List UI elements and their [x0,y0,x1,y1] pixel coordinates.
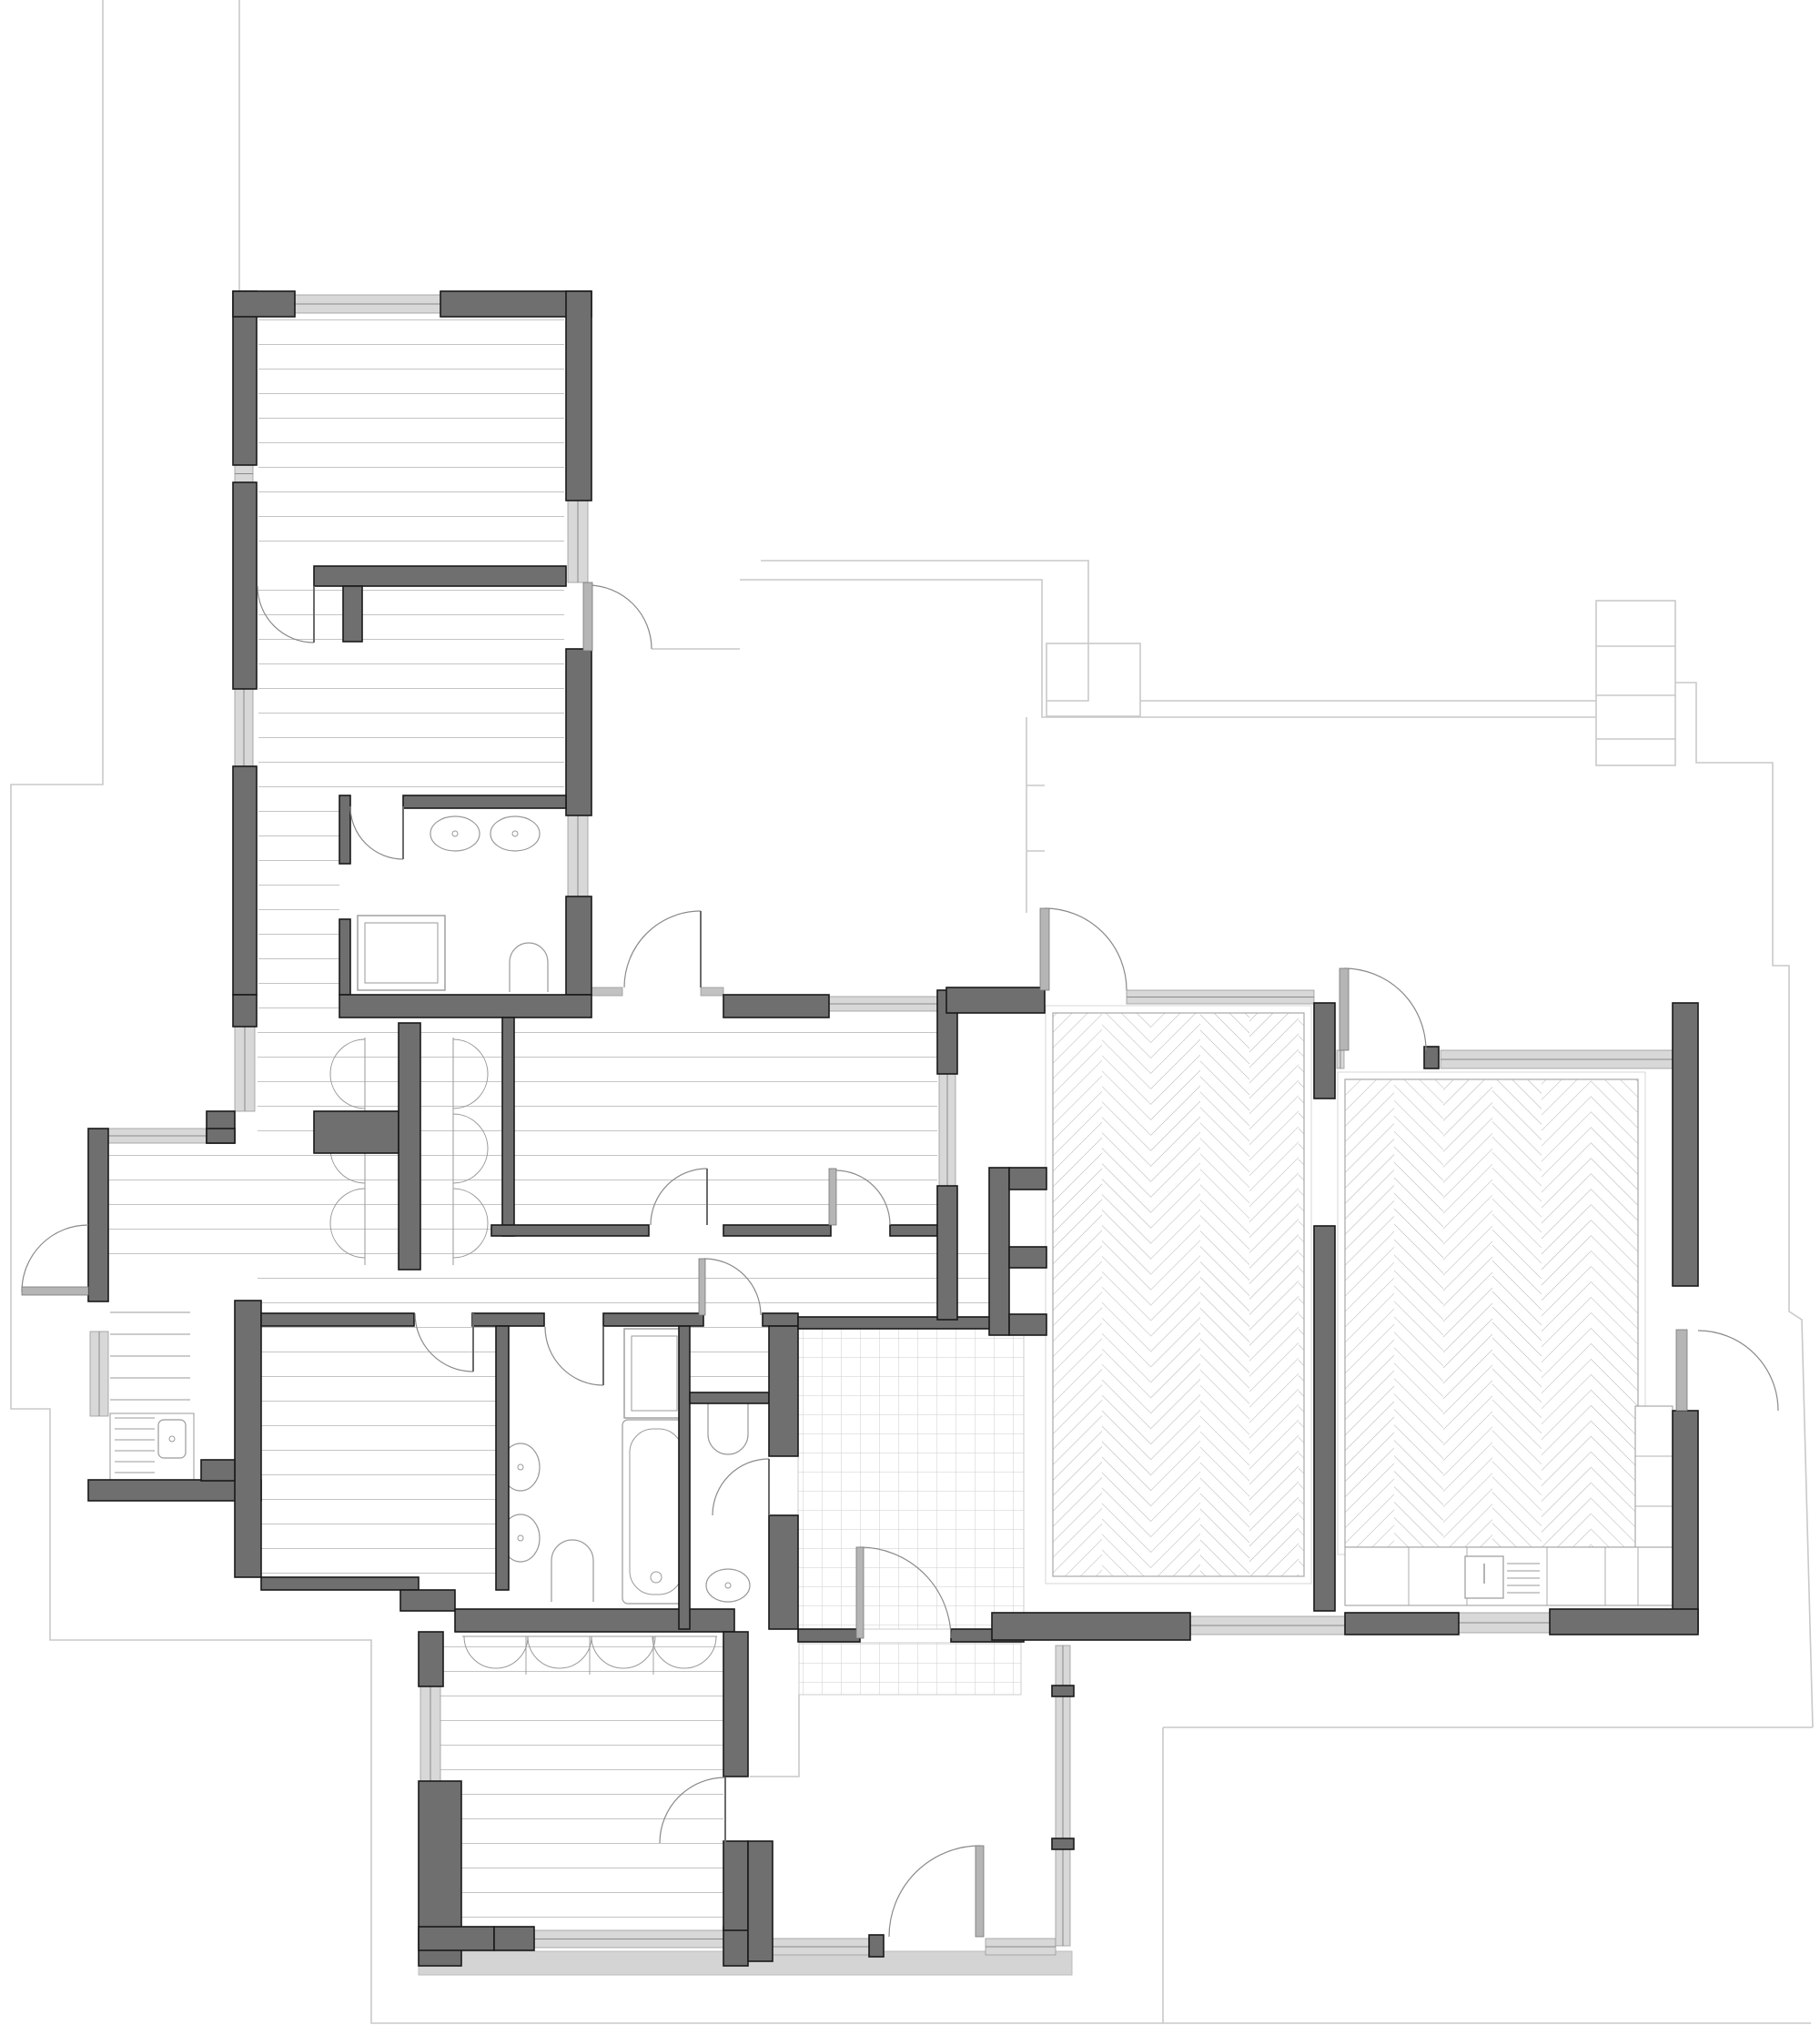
wall-segment [419,1927,494,1950]
wall-segment [566,896,591,995]
site-boundary-line [761,561,1088,701]
wall-segment [314,1111,399,1153]
toilet [510,943,548,992]
door-swing-arc [588,585,652,649]
wall-segment [339,795,350,864]
floor-plan-canvas [0,0,1820,2025]
wall-segment [723,1225,831,1236]
toilet [708,1402,748,1454]
door-leaf [1340,968,1349,1050]
wall-segment [1345,1613,1459,1635]
site-outline-rect [1596,601,1675,765]
door-leaf [1040,908,1049,990]
wall-segment [233,482,257,689]
wall-segment [88,1129,108,1301]
wall-segment [603,1313,703,1326]
sink-basin [706,1569,750,1602]
site-boundary-line [750,1695,799,1777]
herringbone-band [1299,1013,1304,1576]
door-swing-arc [545,1327,603,1385]
wall-segment [1550,1609,1698,1635]
door-swing-arc [350,806,403,859]
herringbone-band [1591,1079,1638,1547]
wall-segment [798,1629,860,1642]
wall-segment [769,1515,798,1629]
door-swing-arc [1344,968,1426,1050]
wall-segment [1314,1226,1335,1611]
door-leaf [856,1547,864,1638]
herringbone-band [1394,1079,1443,1547]
plank-floor [261,1313,496,1577]
wall-segment [566,291,591,501]
wall-segment [314,566,566,586]
wall-segment [343,586,362,642]
herringbone-band [1249,1013,1299,1576]
wall-segment [1052,1686,1074,1696]
sink-basin [490,816,540,851]
counter [1635,1406,1673,1547]
door-swing-arc [713,1459,769,1515]
washing-machine [624,1329,684,1418]
door-swing-arc [1045,908,1127,990]
herringbone-floor [1338,1072,1645,1554]
light-wall-segment [701,987,723,996]
herringbone-band [1200,1013,1249,1576]
site-outline-rect [1046,643,1140,716]
door-leaf [829,1169,836,1225]
kitchenette-sink [158,1420,186,1458]
herringbone-band [1151,1013,1200,1576]
wall-segment [261,1577,419,1590]
wall-segment [937,1186,957,1320]
plank-floor [273,1236,990,1315]
wall-segment [1009,1247,1046,1268]
wall-segment [261,1313,414,1326]
wall-segment [1052,1838,1074,1849]
herringbone-floor [1046,1006,1311,1584]
wall-segment [399,1023,420,1270]
door-leaf [583,582,592,651]
door-swing-arc [889,1846,980,1937]
floor-plan-svg [0,0,1820,2025]
wall-segment [566,649,591,815]
wall-segment [233,291,295,317]
door-leaf [699,1259,705,1315]
plank-floor [514,1018,723,1225]
shower-tray [358,916,445,990]
wall-segment [1009,1168,1046,1190]
plank-floor [690,1327,769,1392]
door-leaf [1676,1330,1687,1411]
wall-segment [989,1168,1009,1335]
wall-segment [339,919,350,995]
wall-segment [494,1927,534,1950]
toilet [551,1540,593,1602]
wall-segment [403,795,566,808]
sink-basin [430,816,480,851]
wall-segment [798,1317,992,1329]
wall-segment [946,987,1045,1013]
wall-segment [1673,1003,1698,1286]
plank-floor [432,1632,723,1927]
herringbone-band [1102,1013,1151,1576]
door-swing-arc [22,1225,88,1291]
wall-segment [890,1225,937,1236]
wall-segment [233,995,257,1027]
wall-segment [723,1632,748,1777]
tile-floor [799,1643,1021,1695]
wall-segment [690,1392,769,1403]
wall-segment [992,1613,1190,1640]
door-swing-arc [1698,1331,1778,1411]
door-leaf [22,1287,88,1295]
counter [1345,1547,1673,1605]
wall-segment [1314,1003,1335,1099]
wall-segment [723,1841,748,1930]
wall-segment [207,1129,235,1143]
wall-segment [1673,1411,1698,1632]
wall-segment [723,995,829,1018]
door-leaf [976,1846,984,1937]
herringbone-band [1492,1079,1542,1547]
wall-segment [339,995,591,1018]
tile-floor [798,1329,1024,1629]
wall-segment [1009,1314,1046,1335]
plank-floor [258,319,564,564]
wall-segment [400,1590,455,1611]
herringbone-band [1443,1079,1492,1547]
door-swing-arc [624,911,701,987]
wall-segment [201,1460,235,1481]
light-wall-segment [591,987,622,996]
wall-segment [679,1326,690,1629]
wall-segment [472,1313,544,1326]
wall-segment [869,1935,884,1957]
wall-segment [723,1927,748,1966]
wall-segment [496,1326,509,1590]
wall-segment [233,766,257,995]
herringbone-band [1542,1079,1591,1547]
wall-segment [455,1609,734,1632]
wall-segment [769,1326,798,1456]
herringbone-band [1053,1013,1102,1576]
wall-segment [748,1841,773,1961]
wall-segment [502,1018,514,1236]
wall-segment [419,1632,443,1686]
herringbone-band [1345,1079,1394,1547]
site-boundary-line [740,580,1596,717]
wall-segment [491,1225,649,1236]
wall-segment [763,1313,798,1326]
wall-segment [235,1301,261,1577]
